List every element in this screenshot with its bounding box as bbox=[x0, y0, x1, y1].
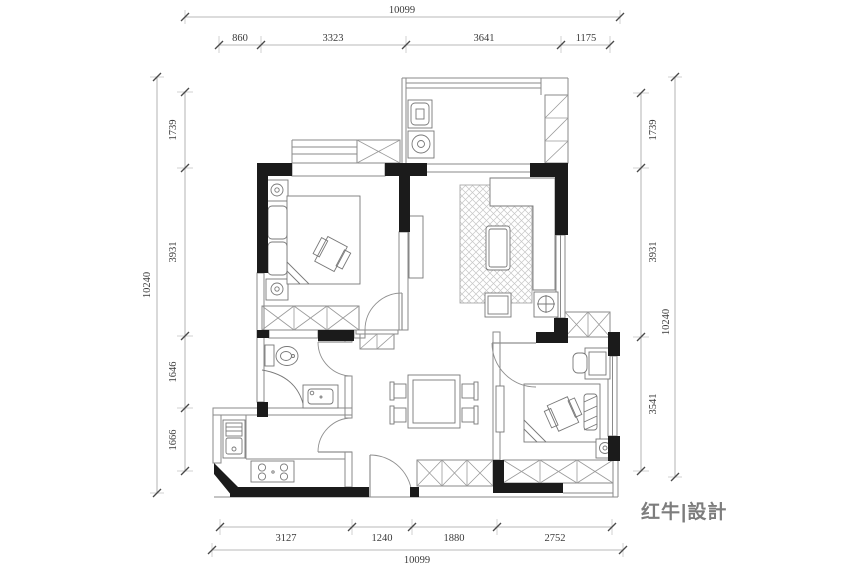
dim-right-seg2: 3541 bbox=[648, 394, 659, 415]
dim-left-seg3: 1666 bbox=[168, 430, 179, 451]
dim-bottom-seg3: 2752 bbox=[545, 533, 566, 544]
dim-bottom-seg2: 1880 bbox=[444, 533, 465, 544]
dimensions-left: 10240 1739 3931 1646 1666 bbox=[142, 73, 193, 497]
dim-bottom-seg1: 1240 bbox=[372, 533, 393, 544]
dim-right-seg0: 1739 bbox=[648, 120, 659, 141]
kitchen bbox=[223, 415, 352, 482]
nightstand-lamp bbox=[266, 279, 288, 300]
kitchen-sink bbox=[223, 420, 245, 458]
shower-curtain bbox=[262, 370, 304, 408]
balcony-cabinet bbox=[503, 460, 613, 483]
dim-right-seg1: 3931 bbox=[648, 242, 659, 263]
laundry-unit bbox=[408, 131, 434, 158]
dim-right-overall: 10240 bbox=[661, 309, 672, 335]
dim-left-seg1: 3931 bbox=[168, 242, 179, 263]
bay-window bbox=[292, 140, 357, 163]
floor-plan-page: 10099 860 3323 3641 1175 10240 1739 3931… bbox=[0, 0, 860, 580]
dining-chair bbox=[462, 406, 478, 424]
stool bbox=[485, 293, 511, 317]
dim-left-seg0: 1739 bbox=[168, 120, 179, 141]
gas-stove bbox=[251, 461, 294, 482]
bedroom1-door bbox=[365, 293, 402, 330]
shoe-cabinet bbox=[356, 330, 398, 349]
kitchen-door bbox=[318, 418, 352, 452]
dining-chair bbox=[390, 382, 406, 400]
dim-left-overall: 10240 bbox=[142, 272, 153, 298]
bathroom bbox=[262, 342, 352, 408]
side-table-crosshair bbox=[534, 292, 558, 317]
dining-chair bbox=[462, 382, 478, 400]
double-bed bbox=[268, 196, 360, 284]
double-bed bbox=[524, 384, 600, 442]
designer-logo: 红牛|設計 bbox=[641, 497, 751, 524]
dim-top-seg1: 3323 bbox=[323, 33, 344, 44]
bathroom-door bbox=[318, 342, 352, 376]
tv-cabinet bbox=[409, 216, 423, 278]
nightstand-lamp bbox=[266, 180, 288, 201]
dim-top-seg3: 1175 bbox=[576, 33, 597, 44]
balcony-window bbox=[406, 78, 541, 95]
bedroom2-door bbox=[492, 343, 536, 387]
dim-top-overall: 10099 bbox=[389, 5, 415, 16]
pillow bbox=[268, 242, 287, 275]
entry-door bbox=[370, 455, 412, 497]
dimensions-bottom: 3127 1240 1880 2752 10099 bbox=[208, 519, 627, 566]
living-room bbox=[409, 178, 558, 317]
dim-bottom-seg0: 3127 bbox=[276, 533, 297, 544]
floor-plan-svg: 10099 860 3323 3641 1175 10240 1739 3931… bbox=[0, 0, 860, 580]
dim-left-seg2: 1646 bbox=[168, 362, 179, 383]
dim-top-seg2: 3641 bbox=[474, 33, 495, 44]
pillow bbox=[268, 206, 287, 239]
toilet bbox=[265, 345, 298, 366]
wardrobe-x-cabinet bbox=[262, 306, 359, 330]
coffee-table bbox=[486, 226, 510, 270]
dining-chair bbox=[390, 406, 406, 424]
vanity-sink bbox=[303, 385, 338, 408]
dim-top-seg0: 860 bbox=[232, 33, 248, 44]
wall-cabinet bbox=[496, 386, 504, 432]
dim-bottom-overall: 10099 bbox=[404, 555, 430, 566]
dining-room bbox=[356, 330, 493, 497]
washing-machine bbox=[408, 100, 432, 128]
dimensions-top: 10099 860 3323 3641 1175 bbox=[181, 5, 624, 53]
dimensions-right: 1739 3931 3541 10240 bbox=[633, 73, 682, 481]
top-x-cabinet bbox=[357, 140, 400, 163]
ac-platform-hatch bbox=[545, 95, 568, 163]
utility-balcony bbox=[402, 78, 568, 163]
balcony-cabinet bbox=[417, 460, 493, 486]
desk-and-chair bbox=[573, 348, 610, 379]
wardrobe-x-cabinet bbox=[565, 312, 610, 337]
dining-table bbox=[408, 375, 460, 428]
